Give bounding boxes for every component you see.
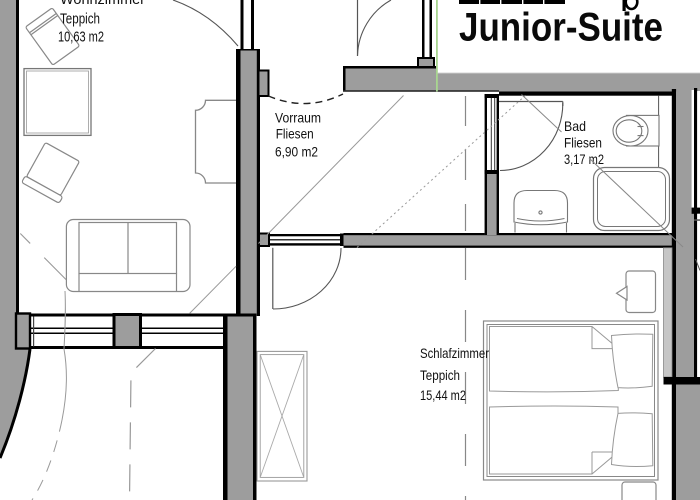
svg-text:Vorraum: Vorraum <box>275 110 321 126</box>
svg-text:Schlafzimmer: Schlafzimmer <box>420 345 489 361</box>
svg-text:3,17 m2: 3,17 m2 <box>564 151 604 167</box>
svg-text:Teppich: Teppich <box>60 11 100 28</box>
svg-text:Fliesen: Fliesen <box>564 135 602 151</box>
svg-text:15,44 m2: 15,44 m2 <box>420 387 466 403</box>
svg-text:Junior-Suite: Junior-Suite <box>459 6 663 50</box>
svg-text:10,63 m2: 10,63 m2 <box>58 29 104 46</box>
svg-text:6,90 m2: 6,90 m2 <box>275 143 318 159</box>
svg-text:Teppich: Teppich <box>420 367 460 383</box>
svg-text:Fliesen: Fliesen <box>276 126 314 142</box>
svg-text:Wohnzimmer: Wohnzimmer <box>60 0 145 8</box>
svg-text:Bad: Bad <box>564 118 586 134</box>
